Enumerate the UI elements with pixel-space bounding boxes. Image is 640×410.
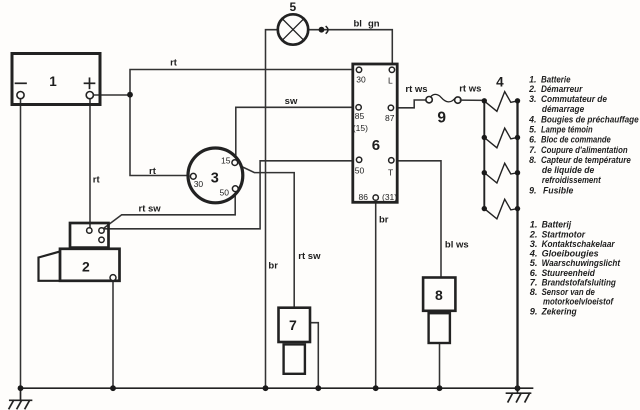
svg-text:bl ws: bl ws (445, 239, 469, 250)
svg-text:87: 87 (385, 113, 395, 123)
svg-text:motorkoelvloeistof: motorkoelvloeistof (543, 297, 614, 307)
svg-text:3.: 3. (530, 239, 538, 249)
svg-text:9.: 9. (530, 306, 538, 316)
svg-text:Lampe témoin: Lampe témoin (541, 125, 593, 135)
svg-text:8.: 8. (530, 287, 538, 297)
svg-text:9: 9 (437, 110, 446, 127)
svg-text:1.: 1. (530, 219, 538, 229)
svg-text:50: 50 (355, 166, 365, 176)
svg-text:Capteur de température: Capteur de température (541, 155, 631, 165)
svg-text:gn: gn (368, 19, 380, 30)
svg-text:sw: sw (285, 96, 298, 107)
svg-text:6.: 6. (530, 268, 538, 278)
svg-text:Batterie: Batterie (541, 74, 571, 84)
svg-text:4.: 4. (529, 249, 538, 259)
svg-text:15: 15 (221, 156, 231, 166)
svg-text:Gloeibougies: Gloeibougies (542, 249, 599, 259)
svg-text:4.: 4. (528, 114, 536, 124)
svg-text:30: 30 (194, 179, 204, 189)
svg-text:Bougies de préchauffage: Bougies de préchauffage (541, 114, 639, 124)
svg-text:50: 50 (220, 187, 230, 197)
svg-text:br: br (379, 215, 389, 226)
svg-text:(15): (15) (353, 123, 368, 133)
svg-text:L: L (388, 76, 393, 86)
svg-text:refroidissement: refroidissement (542, 175, 602, 185)
svg-text:8: 8 (435, 287, 443, 303)
svg-text:Fusible: Fusible (543, 185, 573, 195)
svg-text:(31): (31) (382, 192, 397, 202)
svg-text:de liquide de: de liquide de (542, 165, 595, 175)
svg-text:5.: 5. (530, 258, 538, 268)
svg-text:2.: 2. (529, 229, 538, 239)
svg-text:démarrage: démarrage (542, 104, 584, 114)
svg-text:Batterij: Batterij (542, 219, 572, 229)
svg-text:85: 85 (355, 111, 365, 121)
svg-text:Startmotor: Startmotor (542, 229, 587, 239)
svg-text:2: 2 (82, 258, 90, 274)
svg-text:4: 4 (496, 75, 504, 90)
svg-text:rt sw: rt sw (298, 251, 321, 262)
svg-text:7.: 7. (530, 278, 538, 288)
svg-text:Sensor van de: Sensor van de (542, 287, 595, 297)
svg-text:rt: rt (170, 58, 178, 69)
svg-text:6: 6 (372, 137, 380, 154)
svg-text:rt ws: rt ws (405, 84, 427, 95)
svg-text:Brandstofafsluiting: Brandstofafsluiting (542, 278, 617, 288)
svg-text:1: 1 (49, 74, 57, 89)
svg-text:rt: rt (149, 166, 157, 177)
svg-text:86: 86 (359, 192, 369, 202)
svg-text:T: T (388, 168, 393, 178)
svg-text:Bloc de commande: Bloc de commande (541, 135, 611, 145)
svg-text:bl: bl (354, 19, 362, 30)
svg-text:Coupure d'alimentation: Coupure d'alimentation (541, 145, 628, 155)
svg-text:rt sw: rt sw (139, 203, 162, 214)
svg-text:rt: rt (93, 174, 101, 185)
svg-text:Stuureenheid: Stuureenheid (542, 268, 596, 278)
svg-text:6.: 6. (529, 135, 536, 145)
svg-text:rt ws: rt ws (459, 84, 481, 95)
svg-text:5: 5 (289, 0, 296, 14)
svg-text:2.: 2. (528, 84, 536, 94)
svg-text:1.: 1. (529, 74, 536, 84)
svg-text:8.: 8. (529, 155, 536, 165)
svg-text:3.: 3. (529, 94, 536, 104)
svg-text:Démarreur: Démarreur (541, 84, 583, 94)
svg-text:30: 30 (356, 74, 366, 84)
svg-text:5.: 5. (529, 125, 536, 135)
svg-text:7.: 7. (529, 145, 536, 155)
svg-text:br: br (268, 261, 278, 272)
svg-text:Kontaktschakelaar: Kontaktschakelaar (542, 239, 616, 249)
svg-text:7: 7 (289, 317, 297, 333)
svg-text:Commutateur de: Commutateur de (541, 94, 607, 104)
svg-text:Waarschuwingslicht: Waarschuwingslicht (542, 258, 621, 268)
svg-text:Zekering: Zekering (541, 306, 577, 316)
svg-text:3: 3 (211, 170, 219, 186)
svg-text:9.: 9. (529, 185, 536, 195)
